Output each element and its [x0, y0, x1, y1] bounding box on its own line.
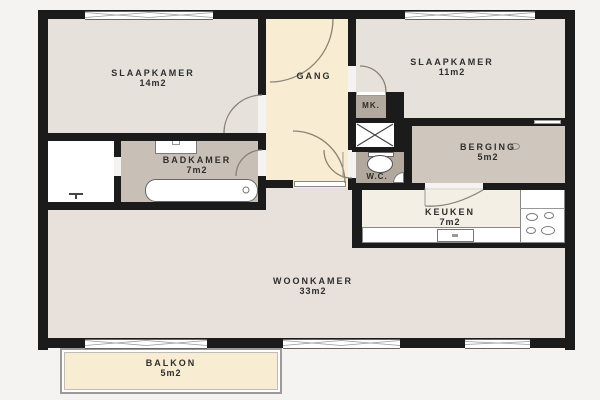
room-area: 14m2 [111, 78, 195, 88]
wall [355, 243, 565, 248]
window [405, 11, 535, 20]
window [85, 11, 213, 20]
room-area: 11m2 [410, 67, 494, 77]
room-name: SLAAPKAMER [111, 68, 195, 78]
label-wc: W.C. [366, 172, 387, 182]
wall [352, 147, 404, 152]
room-name: BALKON [146, 358, 197, 368]
room-name: W.C. [366, 172, 387, 181]
room-area: 7m2 [425, 217, 475, 227]
label-slaapkamer-1: SLAAPKAMER 14m2 [111, 68, 195, 88]
balcony-doors [85, 339, 207, 349]
wall [38, 133, 266, 141]
label-keuken: KEUKEN 7m2 [425, 207, 475, 227]
wall [386, 92, 404, 118]
wall [352, 190, 362, 248]
wall [114, 176, 121, 202]
wall [266, 180, 293, 188]
wall [38, 10, 48, 350]
wall [348, 183, 412, 190]
window [283, 339, 400, 349]
room-area: 33m2 [273, 286, 353, 296]
label-berging: BERGING 5m2 [460, 142, 516, 162]
stove-burner [541, 226, 555, 235]
label-badkamer: BADKAMER 7m2 [163, 155, 232, 175]
room-area: 5m2 [146, 368, 197, 378]
wall [394, 118, 404, 150]
bathtub [145, 179, 258, 202]
room-name: KEUKEN [425, 207, 475, 217]
label-slaapkamer-2: SLAAPKAMER 11m2 [410, 57, 494, 77]
wall [483, 183, 565, 190]
room-name: SLAAPKAMER [410, 57, 494, 67]
toilet-bowl [367, 155, 393, 173]
room-name: MK. [362, 101, 380, 110]
label-mk: MK. [362, 101, 380, 111]
label-balkon: BALKON 5m2 [146, 358, 197, 378]
wall [404, 183, 425, 190]
room-shaft [356, 123, 394, 147]
wall [404, 126, 412, 190]
kitchen-sink-tap [452, 234, 458, 237]
wall [258, 19, 266, 95]
window [465, 339, 530, 349]
room-name: GANG [297, 71, 332, 81]
stove-burner [526, 227, 536, 234]
stove-burner [544, 212, 554, 219]
counter-divider [520, 208, 565, 209]
sliding-door-slot-line [534, 120, 561, 124]
label-woonkamer: WOONKAMER 33m2 [273, 276, 353, 296]
apartment-floor-plan: SLAAPKAMER 14m2 GANG SLAAPKAMER 11m2 MK.… [0, 0, 600, 400]
room-name: WOONKAMER [273, 276, 353, 286]
mk-door-line [357, 92, 385, 96]
room-name: BERGING [460, 142, 516, 152]
wall [565, 10, 575, 350]
wall [348, 19, 356, 66]
wall [38, 202, 266, 210]
room-name: BADKAMER [163, 155, 232, 165]
gang-door-leaf [294, 181, 346, 187]
closet-fixture-stem [75, 195, 77, 199]
room-area: 5m2 [460, 152, 516, 162]
stove-burner [526, 213, 538, 221]
wall [114, 141, 121, 157]
label-gang: GANG [297, 71, 332, 81]
room-area: 7m2 [163, 165, 232, 175]
room-gang [266, 19, 348, 188]
